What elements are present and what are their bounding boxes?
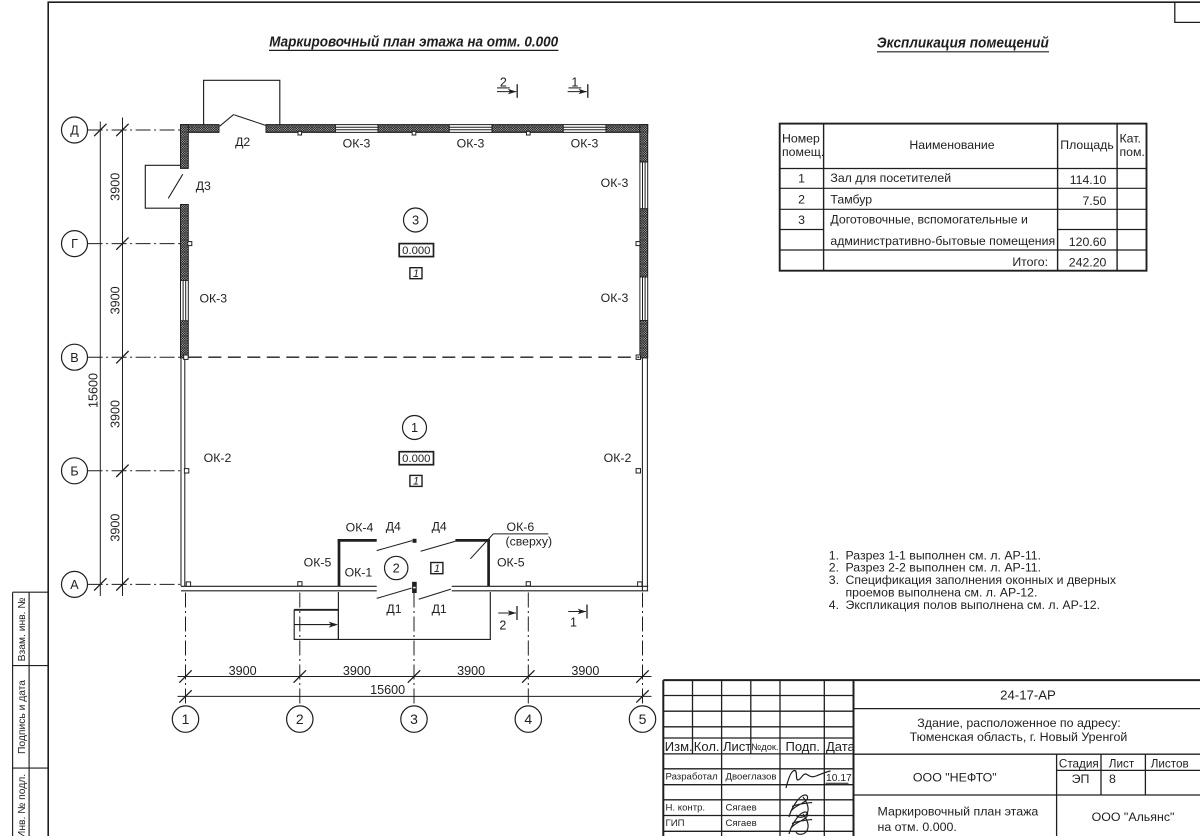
svg-text:3: 3 [412,213,419,228]
svg-text:(сверху): (сверху) [506,534,553,548]
svg-text:Д4: Д4 [386,520,401,534]
svg-text:административно-бытовые помеще: административно-бытовые помещения [830,234,1055,248]
svg-text:3900: 3900 [109,286,123,314]
svg-text:Маркировочный план этажа: Маркировочный план этажа [878,805,1039,819]
svg-text:1: 1 [411,420,418,435]
svg-text:114.10: 114.10 [1070,173,1107,187]
svg-text:ООО "Альянс": ООО "Альянс" [1092,810,1175,824]
svg-text:15600: 15600 [370,683,405,697]
svg-text:Д3: Д3 [196,179,211,193]
svg-text:Сягаев: Сягаев [726,802,757,813]
svg-text:10.17: 10.17 [826,773,852,784]
svg-text:Кат.: Кат. [1120,132,1141,146]
svg-text:4: 4 [524,711,532,727]
svg-text:1: 1 [182,711,190,727]
svg-text:3900: 3900 [571,664,599,678]
svg-text:Маркировочный план этажа на от: Маркировочный план этажа на отм. 0.000 [269,34,559,50]
svg-text:Кол.: Кол. [694,739,720,754]
svg-text:ОК-3: ОК-3 [601,176,629,190]
svg-text:Тюменская область, г. Новый Ур: Тюменская область, г. Новый Уренгой [910,730,1128,744]
svg-text:ОК-5: ОК-5 [497,555,525,569]
svg-text:4.: 4. [829,598,839,612]
svg-text:ОК-3: ОК-3 [199,292,227,306]
svg-text:на отм. 0.000.: на отм. 0.000. [878,820,957,834]
svg-text:Д1: Д1 [386,602,401,616]
svg-text:0.000: 0.000 [402,245,430,257]
svg-text:Взам. инв. №: Взам. инв. № [17,598,28,662]
svg-text:Инв. № подл.: Инв. № подл. [17,774,28,836]
svg-text:Стадия: Стадия [1059,757,1099,770]
svg-text:Тамбур: Тамбур [830,192,872,206]
svg-text:ОК-6: ОК-6 [507,520,535,534]
svg-text:ЭП: ЭП [1072,772,1090,786]
svg-text:Здание, расположенное по адрес: Здание, расположенное по адресу: [917,716,1120,730]
svg-text:Номер: Номер [782,132,820,146]
svg-text:3900: 3900 [457,664,485,678]
svg-text:1: 1 [798,172,805,186]
svg-text:Разработал: Разработал [666,771,718,782]
svg-text:24-17-АР: 24-17-АР [1000,687,1056,702]
svg-text:В: В [70,351,78,365]
svg-text:Экспликация полов выполнена см: Экспликация полов выполнена см. л. АР-12… [846,598,1101,612]
svg-text:Экспликация помещений: Экспликация помещений [877,36,1049,52]
svg-text:Площадь: Площадь [1060,138,1114,152]
svg-text:ГИП: ГИП [666,818,685,829]
svg-text:Д4: Д4 [432,520,447,534]
svg-text:8: 8 [1109,772,1116,786]
svg-text:ОК-3: ОК-3 [457,137,485,151]
svg-text:3900: 3900 [229,664,257,678]
svg-text:Сягаев: Сягаев [726,818,757,829]
svg-text:А: А [70,578,79,592]
svg-text:7.50: 7.50 [1082,194,1106,208]
svg-text:Зал для посетителей: Зал для посетителей [830,171,951,185]
svg-text:15600: 15600 [86,373,100,408]
svg-text:Д2: Д2 [235,135,250,149]
svg-text:Б: Б [70,464,78,478]
svg-text:2: 2 [393,561,400,576]
svg-text:120.60: 120.60 [1069,235,1107,249]
svg-text:1: 1 [570,616,577,630]
svg-text:Двоеглазов: Двоеглазов [726,771,777,782]
svg-text:ОК-2: ОК-2 [204,451,232,465]
svg-text:ОК-4: ОК-4 [346,520,374,534]
svg-text:3900: 3900 [109,173,123,201]
svg-text:Итого:: Итого: [1012,255,1048,269]
svg-text:1: 1 [434,563,440,575]
svg-text:Г: Г [71,237,78,251]
svg-text:2: 2 [499,618,506,632]
svg-text:ОК-3: ОК-3 [571,137,599,151]
svg-text:ОК-1: ОК-1 [345,565,373,579]
svg-text:3: 3 [798,213,805,227]
svg-text:Лист: Лист [1109,757,1135,770]
svg-text:Подп.: Подп. [786,739,821,754]
svg-text:1: 1 [413,476,419,488]
svg-text:2: 2 [296,711,304,727]
svg-text:Д: Д [70,124,79,138]
svg-text:Дата: Дата [826,739,856,754]
svg-text:ОК-2: ОК-2 [604,451,632,465]
svg-text:Лист: Лист [723,739,751,754]
svg-text:2: 2 [798,193,805,207]
svg-text:3900: 3900 [109,514,123,542]
svg-text:№док.: №док. [751,742,778,752]
svg-text:Н. контр.: Н. контр. [666,802,706,813]
svg-text:242.20: 242.20 [1069,255,1107,269]
svg-text:1: 1 [413,268,419,280]
svg-text:ОК-3: ОК-3 [343,137,371,151]
svg-text:ООО "НЕФТО": ООО "НЕФТО" [913,771,997,785]
svg-text:Подпись и дата: Подпись и дата [17,680,28,754]
svg-text:Листов: Листов [1151,757,1189,770]
svg-text:Наименование: Наименование [909,138,994,152]
svg-text:Д1: Д1 [432,602,447,616]
svg-text:помещ.: помещ. [782,145,824,159]
svg-text:3: 3 [410,711,418,727]
svg-text:3.: 3. [829,573,839,587]
svg-text:0.000: 0.000 [402,453,430,465]
svg-text:ОК-3: ОК-3 [601,291,629,305]
svg-text:Доготовочные, вспомогательные: Доготовочные, вспомогательные и [830,213,1028,227]
svg-text:Изм.: Изм. [665,739,693,754]
svg-text:пом.: пом. [1120,145,1145,159]
svg-text:3900: 3900 [109,400,123,428]
svg-text:ОК-5: ОК-5 [304,555,332,569]
svg-text:5: 5 [639,711,647,727]
svg-text:3900: 3900 [343,664,371,678]
